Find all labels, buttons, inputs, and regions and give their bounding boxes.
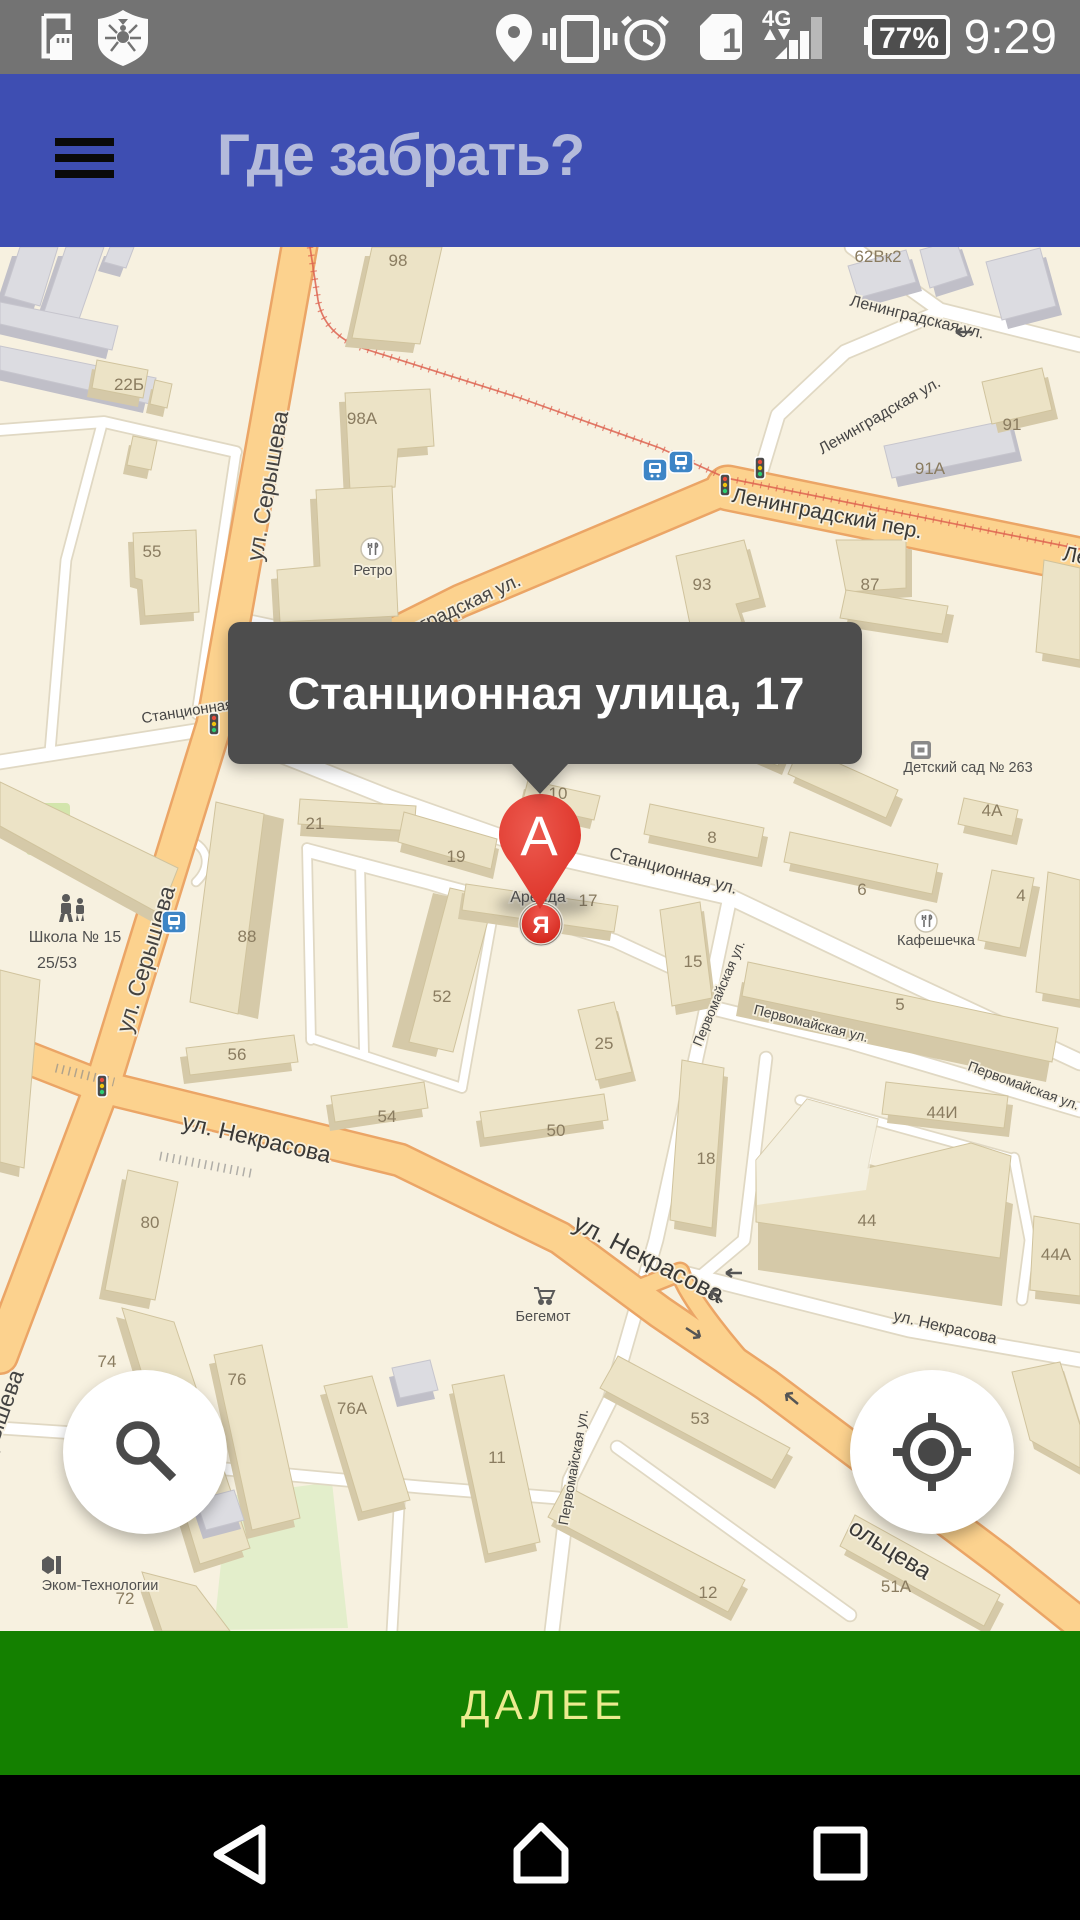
svg-text:44А: 44А	[1041, 1245, 1072, 1264]
svg-text:25: 25	[595, 1034, 614, 1053]
svg-text:А: А	[520, 804, 558, 867]
svg-text:4G: 4G	[762, 6, 791, 31]
svg-text:74: 74	[98, 1352, 117, 1371]
svg-text:50: 50	[547, 1121, 566, 1140]
svg-text:52: 52	[433, 987, 452, 1006]
svg-text:56: 56	[228, 1045, 247, 1064]
svg-text:88: 88	[238, 927, 257, 946]
svg-text:4: 4	[1016, 886, 1025, 905]
svg-text:76: 76	[228, 1370, 247, 1389]
svg-text:77%: 77%	[879, 22, 939, 55]
svg-text:76А: 76А	[337, 1399, 368, 1418]
svg-text:21: 21	[306, 814, 325, 833]
svg-text:80: 80	[141, 1213, 160, 1232]
svg-text:4А: 4А	[982, 801, 1003, 820]
svg-text:25/53: 25/53	[37, 955, 77, 972]
svg-text:53: 53	[691, 1409, 710, 1428]
svg-text:Станционная улица, 17: Станционная улица, 17	[288, 668, 805, 719]
svg-text:Эком-Технологии: Эком-Технологии	[42, 1578, 159, 1594]
svg-text:62Вк2: 62Вк2	[854, 247, 901, 266]
svg-text:Я: Я	[532, 912, 549, 939]
svg-text:1: 1	[722, 22, 741, 60]
svg-text:98: 98	[389, 251, 408, 270]
svg-text:44И: 44И	[926, 1103, 957, 1122]
svg-text:11: 11	[488, 1448, 506, 1467]
svg-text:Кафешечка: Кафешечка	[897, 933, 976, 949]
svg-text:12: 12	[699, 1583, 718, 1602]
svg-text:51А: 51А	[881, 1577, 912, 1596]
svg-text:91А: 91А	[915, 459, 946, 478]
svg-text:19: 19	[447, 847, 466, 866]
svg-text:5: 5	[895, 995, 904, 1014]
svg-text:54: 54	[378, 1107, 397, 1126]
svg-text:98А: 98А	[347, 409, 378, 428]
svg-text:Ретро: Ретро	[353, 563, 392, 579]
svg-text:Бегемот: Бегемот	[516, 1309, 571, 1325]
svg-text:6: 6	[857, 880, 866, 899]
svg-text:22Б: 22Б	[114, 375, 144, 394]
svg-text:18: 18	[697, 1149, 716, 1168]
svg-text:87: 87	[861, 575, 880, 594]
svg-text:Детский сад № 263: Детский сад № 263	[903, 760, 1032, 776]
svg-text:9:29: 9:29	[964, 11, 1057, 64]
svg-text:93: 93	[693, 575, 712, 594]
svg-text:Школа № 15: Школа № 15	[29, 929, 122, 946]
svg-text:44: 44	[858, 1211, 877, 1230]
svg-text:15: 15	[684, 952, 703, 971]
svg-text:91: 91	[1003, 415, 1022, 434]
svg-text:8: 8	[707, 828, 716, 847]
svg-text:55: 55	[143, 542, 162, 561]
